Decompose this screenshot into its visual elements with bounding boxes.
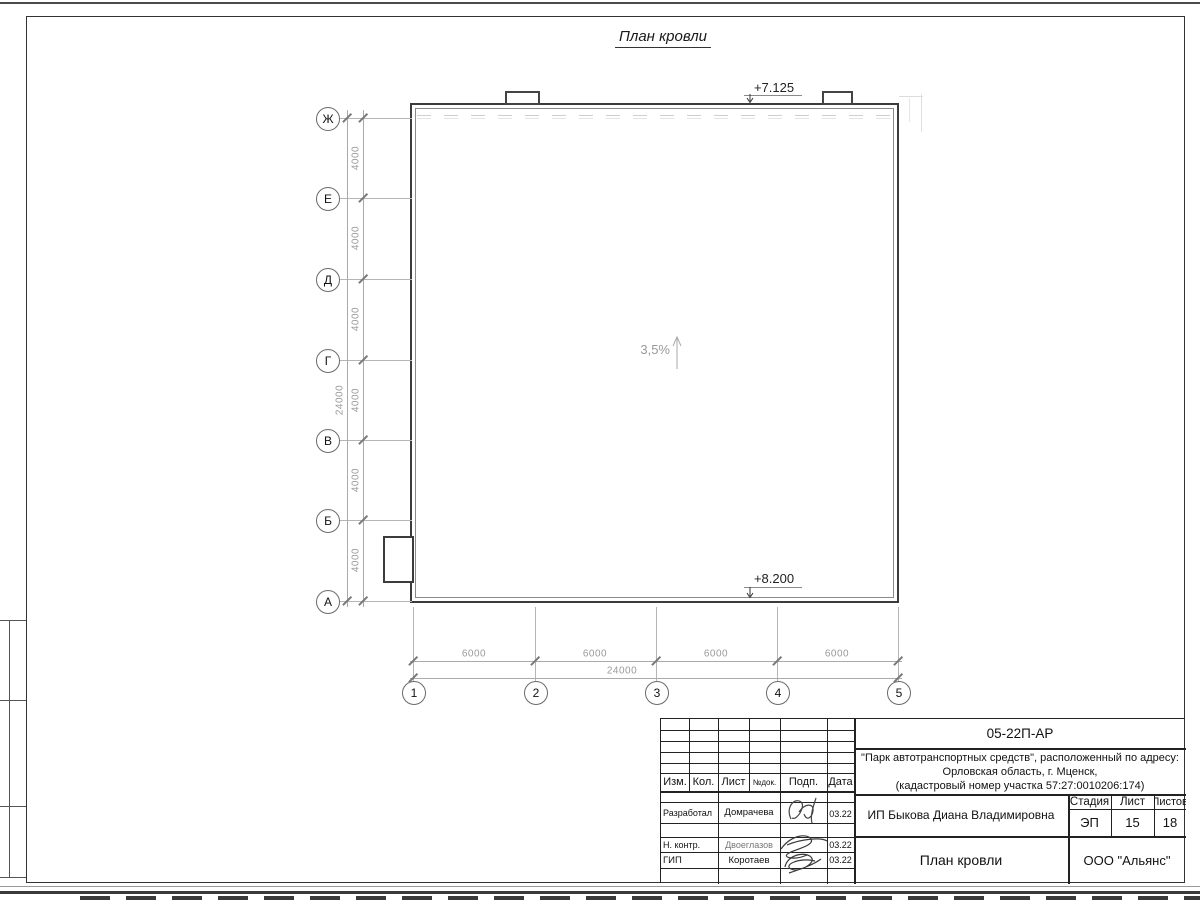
col-izm: Изм.	[661, 773, 689, 791]
roof-hatch	[822, 91, 853, 105]
axis-bubble: 5	[887, 681, 911, 705]
signer-name: Коротаев	[718, 852, 780, 868]
company-name: ООО "Альянс"	[1068, 836, 1186, 884]
dim-label: 4000	[351, 468, 362, 492]
doc-number: 05-22П-АР	[854, 719, 1186, 748]
col-list: Лист	[718, 773, 749, 791]
axis-bubble: Е	[316, 187, 340, 211]
dimension-line-bottom-total	[410, 678, 902, 679]
dim-label: 4000	[351, 388, 362, 412]
axis-line	[413, 607, 414, 681]
axis-label: 2	[533, 686, 540, 700]
project-description: "Парк автотранспортных средств", располо…	[857, 748, 1183, 797]
dim-label: 6000	[704, 649, 728, 660]
axis-line	[338, 360, 412, 361]
page-top-edge	[0, 2, 1200, 4]
dim-label: 6000	[583, 649, 607, 660]
signer-name: Домрачева	[718, 802, 780, 823]
roof-hatch	[505, 91, 540, 105]
sheets-label: Листов	[1154, 794, 1186, 809]
elevation-arrow-icon	[745, 587, 755, 599]
axis-line	[338, 279, 412, 280]
axis-line	[656, 607, 657, 681]
signature-scribble	[783, 795, 827, 827]
sheet-number: 15	[1111, 809, 1154, 836]
drawing-title: План кровли	[563, 28, 763, 45]
title-block: Изм. Кол. Лист №док. Подп. Дата Разработ…	[660, 718, 1185, 883]
dim-label: 4000	[351, 146, 362, 170]
stage-value: ЭП	[1068, 809, 1111, 836]
signer-role: Разработал	[663, 802, 718, 823]
dimension-line-left-total	[347, 110, 348, 607]
axis-line	[338, 118, 412, 119]
signer-date: 03.22	[827, 837, 854, 852]
axis-bubble: Б	[316, 509, 340, 533]
dim-label: 6000	[462, 649, 486, 660]
project-line: "Парк автотранспортных средств", располо…	[857, 751, 1183, 765]
roof-dashed-line	[417, 118, 892, 119]
col-ndok: №док.	[749, 773, 780, 791]
axis-line	[338, 198, 412, 199]
axis-label: 1	[411, 686, 418, 700]
dim-label: 4000	[351, 226, 362, 250]
corner-detail-mark	[899, 96, 923, 97]
project-line: Орловская область, г. Мценск,	[857, 765, 1183, 779]
axis-label: 3	[654, 686, 661, 700]
axis-label: Б	[324, 514, 332, 528]
titleblock-line	[661, 791, 854, 793]
corner-detail-mark	[909, 98, 910, 122]
axis-label: В	[324, 434, 332, 448]
signer-date: 03.22	[827, 804, 854, 823]
margin-table-line	[0, 620, 26, 621]
axis-label: А	[324, 595, 332, 609]
dim-label: 4000	[351, 548, 362, 572]
wall-protrusion	[383, 536, 414, 583]
sheets-total: 18	[1154, 809, 1186, 836]
dim-label: 6000	[825, 649, 849, 660]
signer-role: Н. контр.	[663, 837, 718, 852]
axis-bubble: 3	[645, 681, 669, 705]
axis-label: 5	[896, 686, 903, 700]
axis-bubble: Д	[316, 268, 340, 292]
slope-arrow-icon	[670, 334, 684, 370]
dim-total-label: 24000	[335, 385, 346, 415]
axis-bubble: А	[316, 590, 340, 614]
corner-detail-mark	[921, 94, 922, 132]
axis-line	[777, 607, 778, 681]
axis-bubble: 1	[402, 681, 426, 705]
axis-label: 4	[775, 686, 782, 700]
client-name: ИП Быкова Диана Владимировна	[854, 794, 1068, 836]
axis-label: Д	[324, 273, 332, 287]
axis-bubble: Г	[316, 349, 340, 373]
sheet-title: План кровли	[854, 836, 1068, 884]
drawing-title-text: План кровли	[615, 28, 711, 48]
margin-table-line	[0, 877, 26, 878]
margin-table-line	[0, 806, 26, 807]
col-data: Дата	[827, 773, 854, 791]
axis-label: Г	[325, 354, 332, 368]
axis-label: Ж	[322, 112, 333, 126]
signer-date: 03.22	[827, 852, 854, 868]
page-bottom-edge-thin	[0, 886, 1200, 887]
margin-table-line	[0, 700, 26, 701]
col-kol: Кол.	[689, 773, 718, 791]
drawing-sheet: План кровли 4000 4000 4000 4000 4000 400…	[0, 0, 1200, 900]
axis-bubble: 4	[766, 681, 790, 705]
sheet-label: Лист	[1111, 794, 1154, 809]
stage-label: Стадия	[1068, 794, 1111, 809]
page-bottom-edge-thick	[0, 891, 1200, 894]
axis-line	[338, 520, 412, 521]
elevation-mark-bottom: +8.200	[744, 571, 804, 586]
slope-label: 3,5%	[626, 342, 670, 357]
axis-label: Е	[324, 192, 332, 206]
dim-label: 4000	[351, 307, 362, 331]
axis-bubble: В	[316, 429, 340, 453]
margin-table-line	[9, 620, 10, 877]
axis-bubble: Ж	[316, 107, 340, 131]
axis-line	[898, 607, 899, 681]
axis-line	[535, 607, 536, 681]
signer-role: ГИП	[663, 852, 718, 868]
elevation-mark-top: +7.125	[744, 80, 804, 95]
elevation-arrow-icon	[745, 94, 755, 104]
signer-name: Двоеглазов	[718, 837, 780, 852]
signature-scribble	[777, 831, 829, 875]
col-podp: Подп.	[780, 773, 827, 791]
axis-line	[338, 440, 412, 441]
axis-line	[338, 601, 412, 602]
project-line: (кадастровый номер участка 57:27:0010206…	[857, 779, 1183, 793]
dim-total-label: 24000	[607, 666, 637, 677]
roof-dashed-line	[417, 115, 892, 116]
page-bottom-scan-artifact	[80, 896, 1200, 900]
axis-bubble: 2	[524, 681, 548, 705]
